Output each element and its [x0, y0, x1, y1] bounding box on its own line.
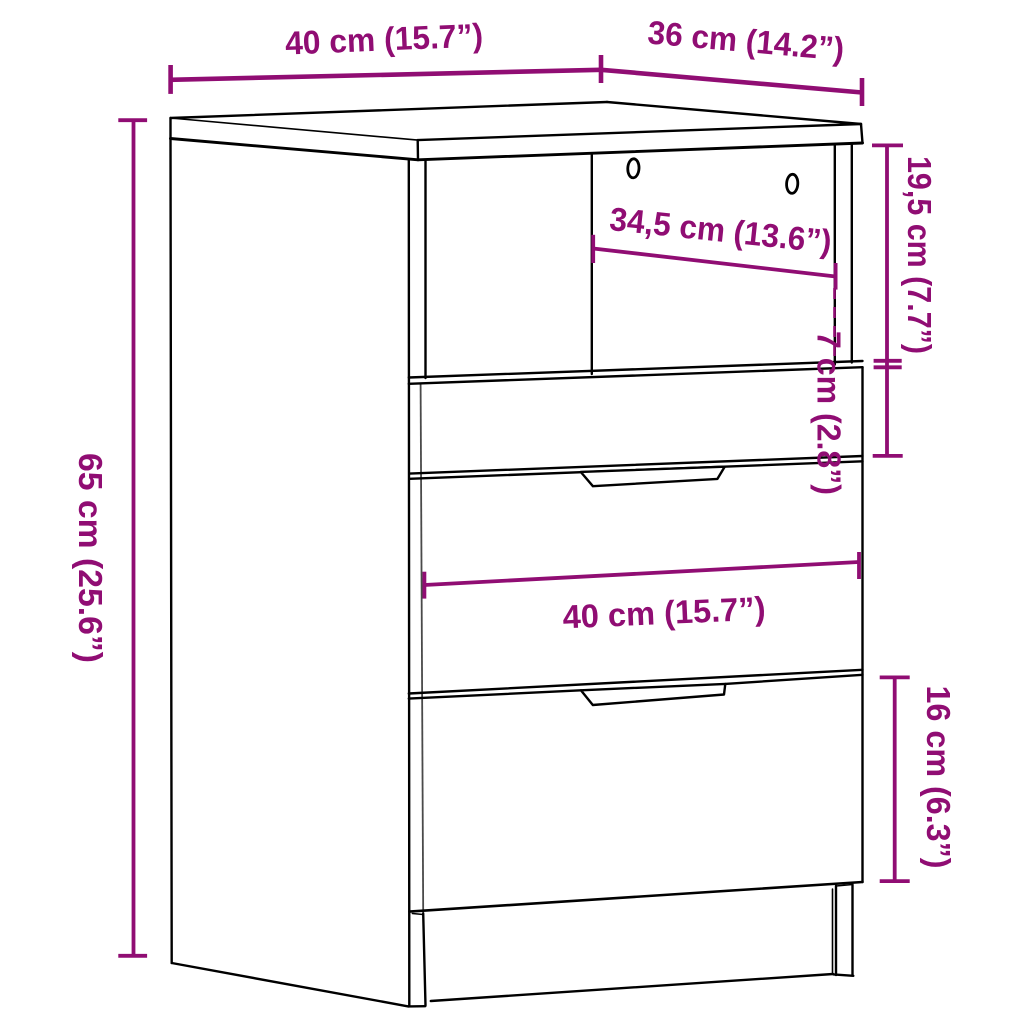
- svg-text:16 cm (6.3”): 16 cm (6.3”): [920, 686, 957, 869]
- svg-text:19,5 cm (7.7”): 19,5 cm (7.7”): [901, 156, 938, 354]
- svg-text:65 cm (25.6”): 65 cm (25.6”): [72, 453, 109, 663]
- svg-text:7 cm (2.8”): 7 cm (2.8”): [811, 331, 848, 495]
